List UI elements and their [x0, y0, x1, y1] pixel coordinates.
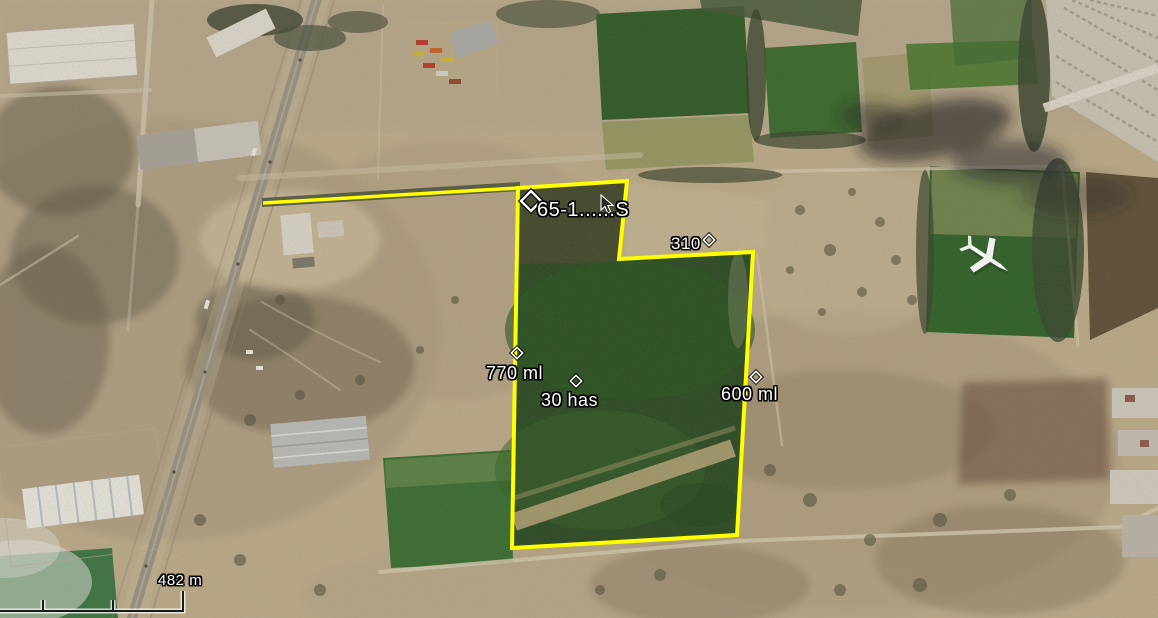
placemark-label-600ml[interactable]: 600 ml	[721, 385, 778, 403]
placemark-label-770ml[interactable]: 770 ml	[486, 364, 543, 382]
placemark-label-65-1[interactable]: 65-1......S	[537, 200, 629, 220]
placemark-label-310[interactable]: 310	[671, 235, 701, 252]
grain-texture	[0, 0, 1158, 618]
scale-bar-label: 482 m	[158, 573, 202, 588]
satellite-art	[0, 0, 1158, 618]
map-canvas[interactable]: 65-1......S 310 770 ml 30 has 600 ml 482…	[0, 0, 1158, 618]
placemark-label-30has[interactable]: 30 has	[541, 391, 598, 409]
